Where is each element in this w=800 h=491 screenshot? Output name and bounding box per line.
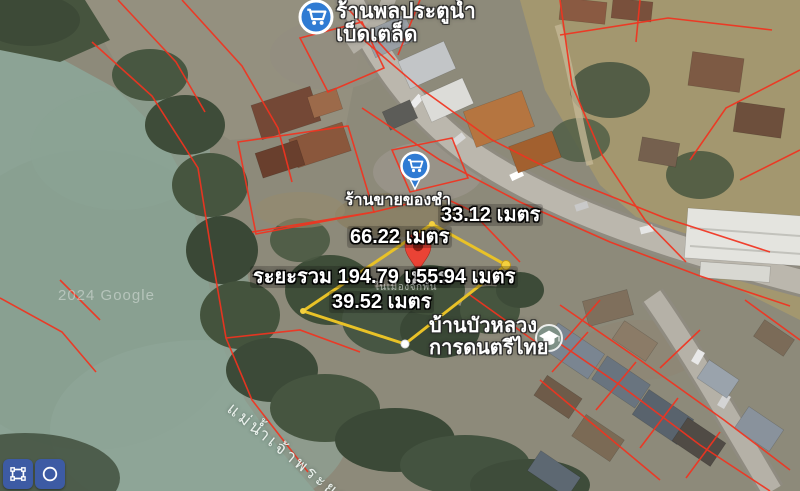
draw-circle-icon (41, 465, 59, 483)
draw-polygon-icon (9, 465, 27, 483)
map-viewport[interactable]: ร้านพลประตูน้ำ เบ็ดเตล็ด ร้านขายของชำ 33… (0, 0, 800, 491)
music-school-name-line2: การดนตรีไทย (429, 338, 548, 360)
plot-vertex-bottom[interactable] (401, 340, 409, 348)
music-school-name-line1: บ้านบัวหลวง (429, 316, 548, 338)
draw-polygon-tool-button[interactable] (3, 459, 33, 489)
shop-top-name-line1: ร้านพลประตูน้ำ (336, 1, 476, 24)
poi-label-grocery[interactable]: ร้านขายของชำ (345, 188, 451, 213)
measurement-segment-top-left: 66.22 เมตร (347, 226, 452, 248)
poi-label-shop-top[interactable]: ร้านพลประตูน้ำ เบ็ดเตล็ด (336, 1, 476, 46)
poi-label-music-school[interactable]: บ้านบัวหลวง การดนตรีไทย (429, 316, 548, 359)
plot-vertex-left[interactable] (300, 308, 306, 314)
google-watermark: 2024 Google (58, 287, 155, 304)
shop-top-name-line2: เบ็ดเตล็ด (336, 24, 476, 47)
measurement-segment-top-right: 33.12 เมตร (438, 204, 543, 226)
faint-place-label: ในเมืองจักพัน (374, 280, 437, 295)
draw-circle-tool-button[interactable] (35, 459, 65, 489)
shop-top-poi-pin[interactable] (300, 1, 332, 33)
